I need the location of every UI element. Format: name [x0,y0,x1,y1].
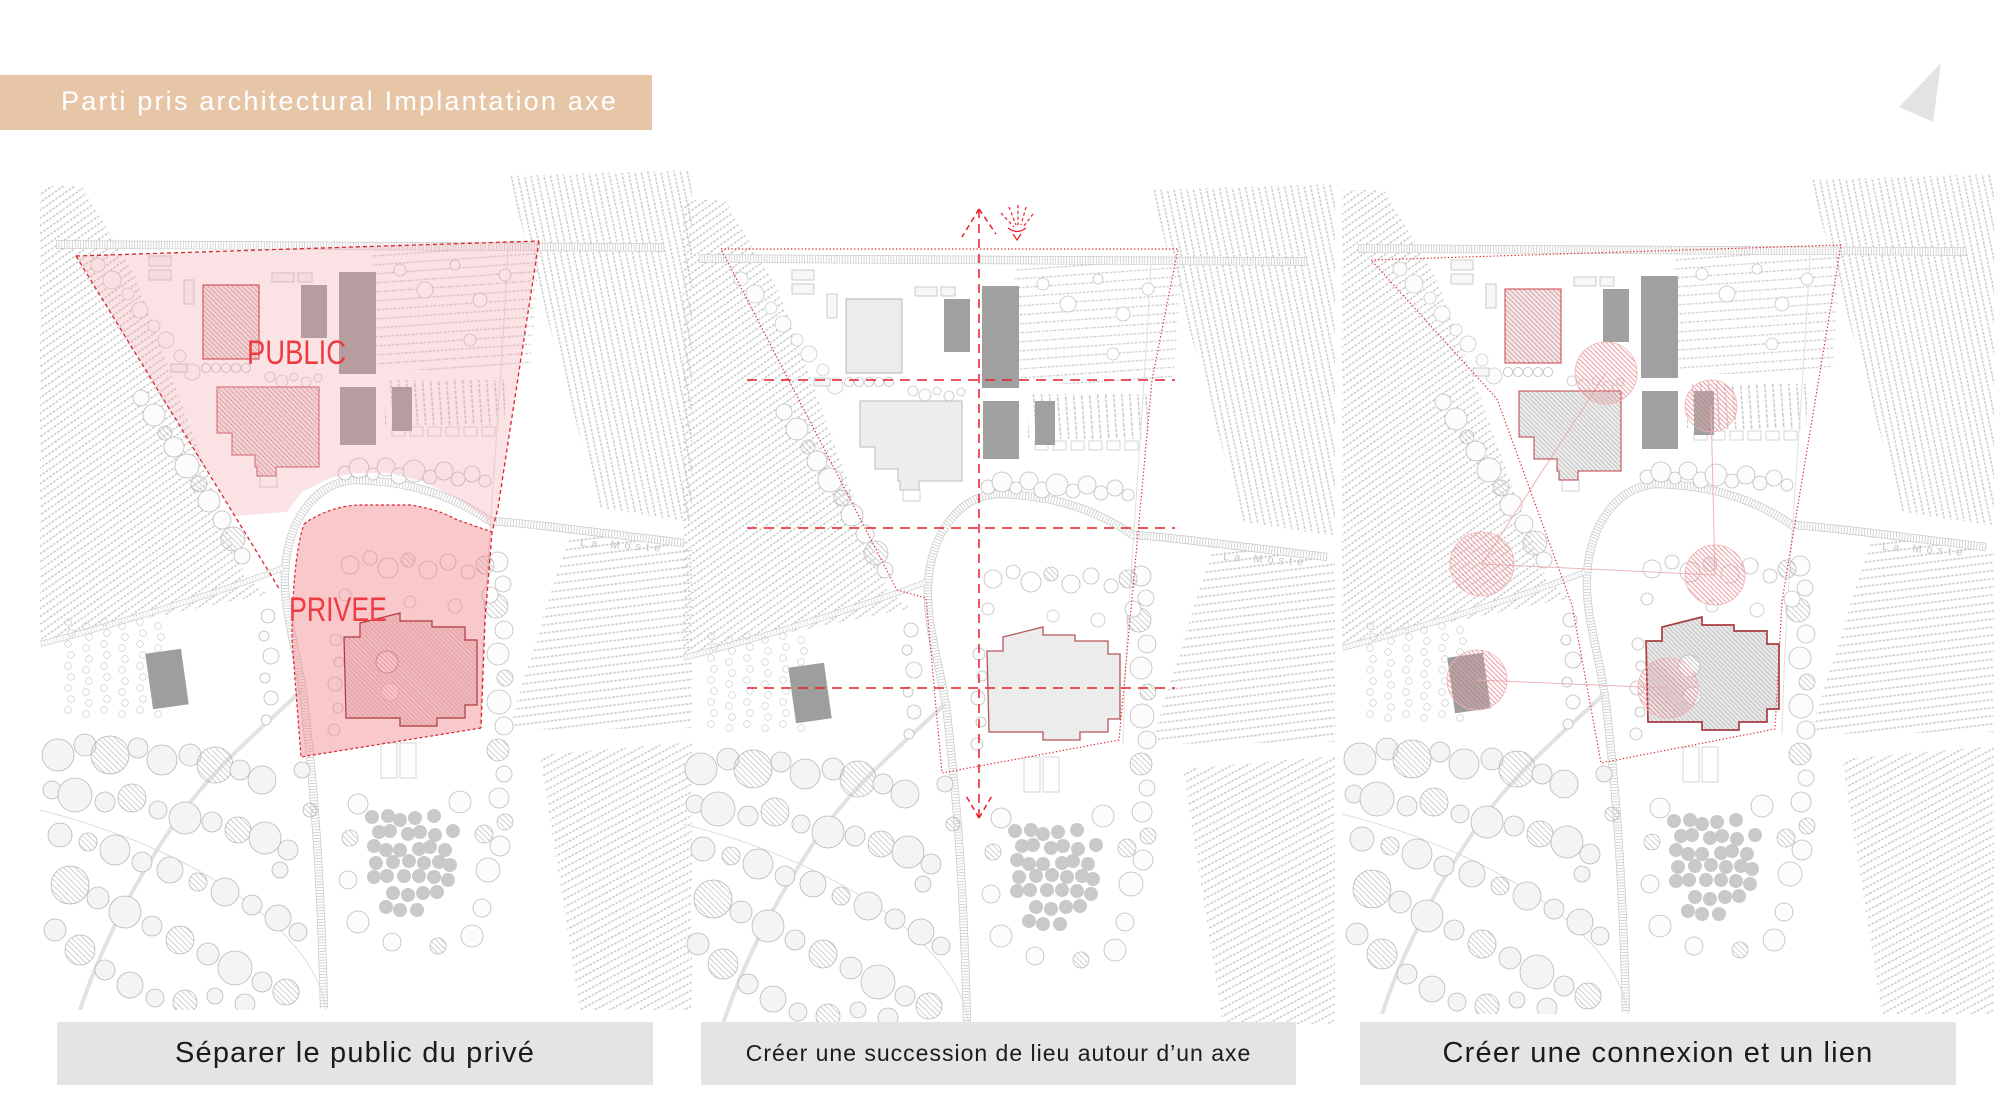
svg-text:PUBLIC: PUBLIC [247,334,346,372]
svg-text:PRIVEE: PRIVEE [289,591,387,629]
